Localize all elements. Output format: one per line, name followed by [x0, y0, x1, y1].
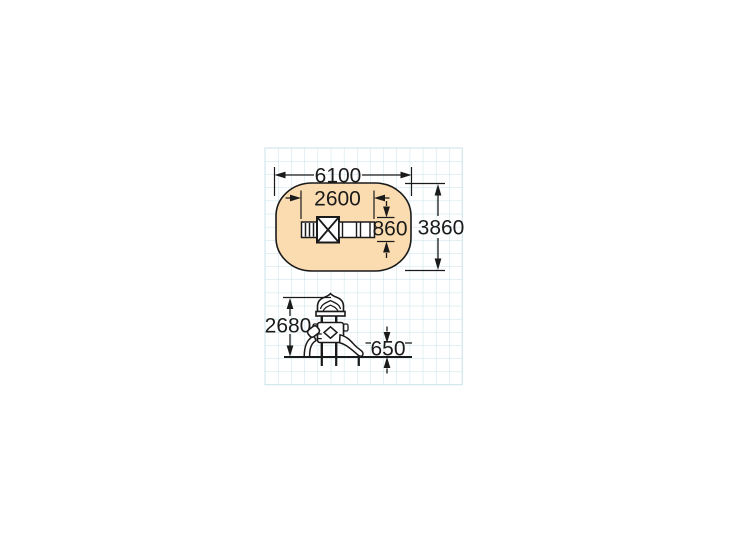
roof-base-band	[316, 312, 345, 317]
dim-label-2680: 2680	[265, 315, 312, 338]
dim-label-3860: 3860	[418, 217, 465, 240]
dim-label-6100: 6100	[315, 165, 362, 188]
dim-label-860: 860	[372, 218, 407, 241]
dim-label-2600: 2600	[314, 188, 361, 211]
dim-label-650: 650	[370, 338, 405, 361]
playground-dimension-drawing: 6100 3860 2600 860	[0, 0, 744, 558]
technical-drawing-page: 6100 3860 2600 860	[0, 0, 744, 558]
